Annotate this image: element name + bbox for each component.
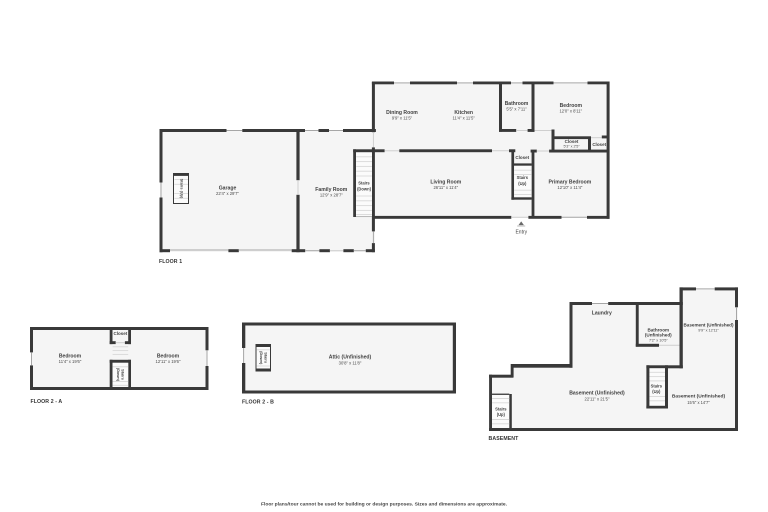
- svg-text:Stairs (Up): Stairs (Up): [179, 179, 184, 199]
- svg-text:7'2" x 10'5": 7'2" x 10'5": [649, 338, 668, 342]
- svg-text:9'9" x 12'11": 9'9" x 12'11": [698, 329, 719, 333]
- svg-text:Closet: Closet: [565, 139, 579, 144]
- svg-text:Laundry: Laundry: [592, 311, 612, 317]
- svg-text:(Up): (Up): [497, 412, 506, 417]
- svg-text:Closet: Closet: [515, 155, 529, 160]
- svg-text:26'11" x 11'4": 26'11" x 11'4": [433, 185, 458, 190]
- svg-text:12'10" x 11'4": 12'10" x 11'4": [557, 185, 582, 190]
- svg-text:(Up): (Up): [652, 389, 661, 394]
- svg-text:(Down): (Down): [116, 368, 121, 382]
- svg-text:Stairs: Stairs: [358, 181, 370, 186]
- svg-text:FLOOR 2 - B: FLOOR 2 - B: [242, 400, 274, 406]
- svg-text:12'0" x 8'11": 12'0" x 8'11": [559, 108, 582, 113]
- svg-text:12'9" x 28'7": 12'9" x 28'7": [320, 193, 343, 198]
- svg-text:Closet: Closet: [114, 331, 128, 336]
- svg-text:(Up): (Up): [518, 181, 527, 186]
- svg-text:9'9" x 11'5": 9'9" x 11'5": [392, 116, 413, 121]
- svg-text:11'4" x 19'6": 11'4" x 19'6": [59, 359, 82, 364]
- svg-text:Closet: Closet: [592, 142, 606, 147]
- svg-text:BASEMENT: BASEMENT: [489, 436, 520, 442]
- svg-text:5'3" x 2'5": 5'3" x 2'5": [563, 144, 580, 148]
- svg-text:FLOOR 2 - A: FLOOR 2 - A: [31, 399, 63, 405]
- svg-text:15'6" x 14'7": 15'6" x 14'7": [687, 400, 710, 405]
- svg-text:22'11" x 21'5": 22'11" x 21'5": [585, 396, 610, 401]
- svg-text:Entry: Entry: [515, 230, 527, 236]
- svg-text:(Down): (Down): [357, 187, 372, 192]
- svg-text:5'5" x 7'11": 5'5" x 7'11": [506, 106, 527, 111]
- svg-text:11'4" x 11'5": 11'4" x 11'5": [453, 116, 476, 121]
- svg-text:Stairs: Stairs: [651, 383, 663, 388]
- svg-text:Basement (Unfinished): Basement (Unfinished): [683, 323, 733, 328]
- svg-text:Stairs: Stairs: [517, 175, 529, 180]
- svg-text:(Unfinished): (Unfinished): [645, 332, 672, 337]
- svg-text:30'8" x 11'8": 30'8" x 11'8": [339, 360, 362, 365]
- svg-text:Basement (Unfinished): Basement (Unfinished): [672, 394, 726, 400]
- svg-text:FLOOR 1: FLOOR 1: [159, 259, 182, 265]
- svg-text:22'4" x 29'7": 22'4" x 29'7": [216, 191, 239, 196]
- svg-text:(Down): (Down): [259, 351, 264, 365]
- svg-text:12'11" x 19'6": 12'11" x 19'6": [156, 359, 181, 364]
- svg-text:Floor plans/tour cannot be use: Floor plans/tour cannot be used for buil…: [261, 502, 508, 508]
- svg-text:Stairs: Stairs: [495, 407, 507, 412]
